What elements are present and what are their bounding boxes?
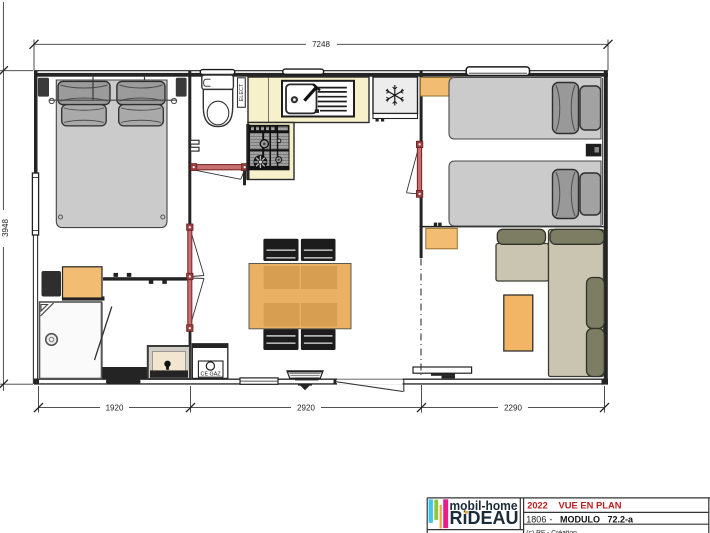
- svg-text:2022: 2022: [527, 501, 547, 511]
- svg-text:ELECT: ELECT: [239, 83, 245, 101]
- svg-text:CE GAZ: CE GAZ: [201, 372, 222, 378]
- svg-text:RiDEAU: RiDEAU: [450, 507, 519, 528]
- svg-text:3948: 3948: [1, 219, 10, 237]
- svg-text:2920: 2920: [297, 403, 315, 412]
- svg-text:1806: 1806: [526, 514, 546, 524]
- svg-text:72.2-a: 72.2-a: [608, 514, 635, 524]
- svg-text:(c) RF - Création: (c) RF - Création: [526, 530, 577, 533]
- svg-text:7248: 7248: [312, 40, 330, 49]
- svg-text:VUE EN PLAN: VUE EN PLAN: [559, 501, 622, 511]
- svg-text:-: -: [550, 514, 553, 524]
- svg-text:1920: 1920: [106, 403, 124, 412]
- svg-text:2290: 2290: [504, 403, 522, 412]
- svg-text:MODULO: MODULO: [560, 514, 600, 524]
